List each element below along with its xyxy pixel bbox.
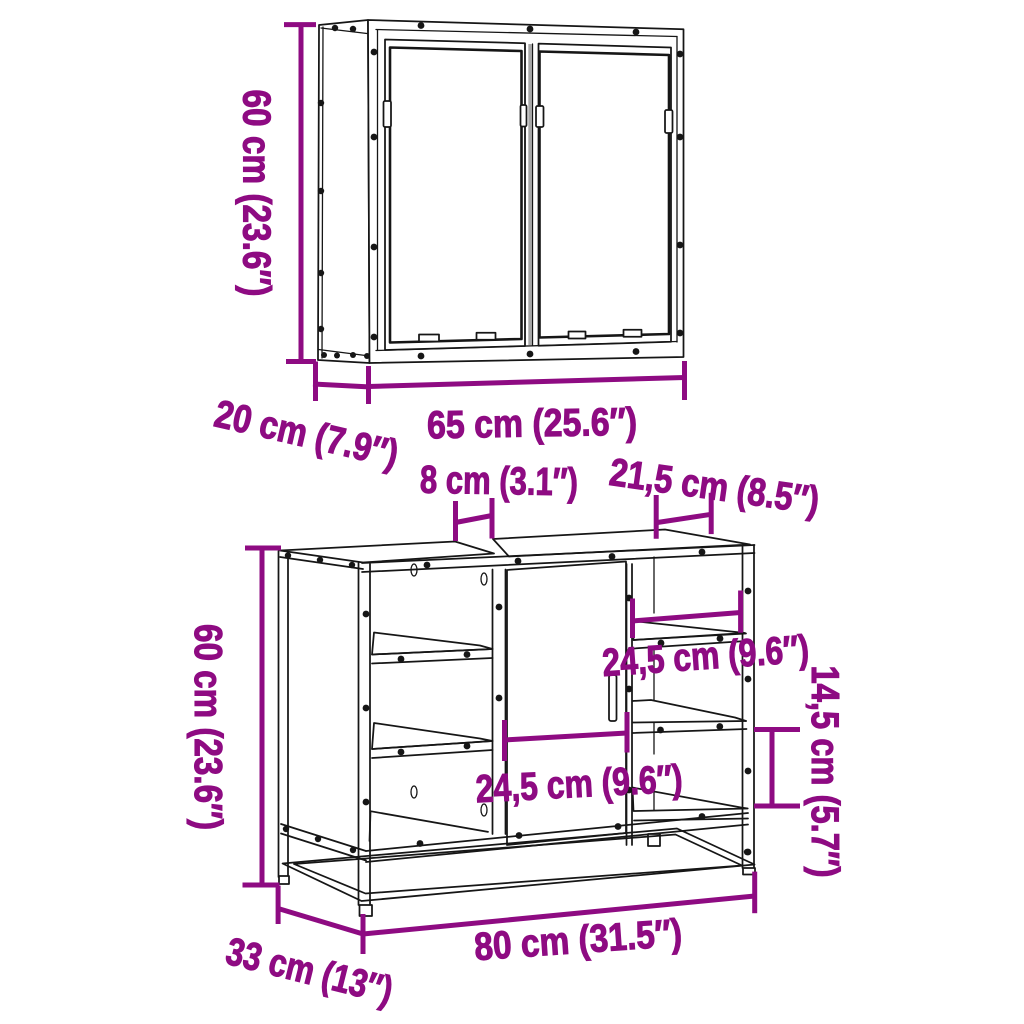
svg-text:60 cm (23.6″): 60 cm (23.6″) — [186, 624, 229, 830]
svg-text:60 cm (23.6″): 60 cm (23.6″) — [235, 90, 278, 297]
svg-text:8 cm (3.1″): 8 cm (3.1″) — [420, 459, 579, 505]
svg-text:14,5 cm (5.7″): 14,5 cm (5.7″) — [803, 666, 846, 878]
svg-text:65 cm (25.6″): 65 cm (25.6″) — [427, 401, 638, 448]
